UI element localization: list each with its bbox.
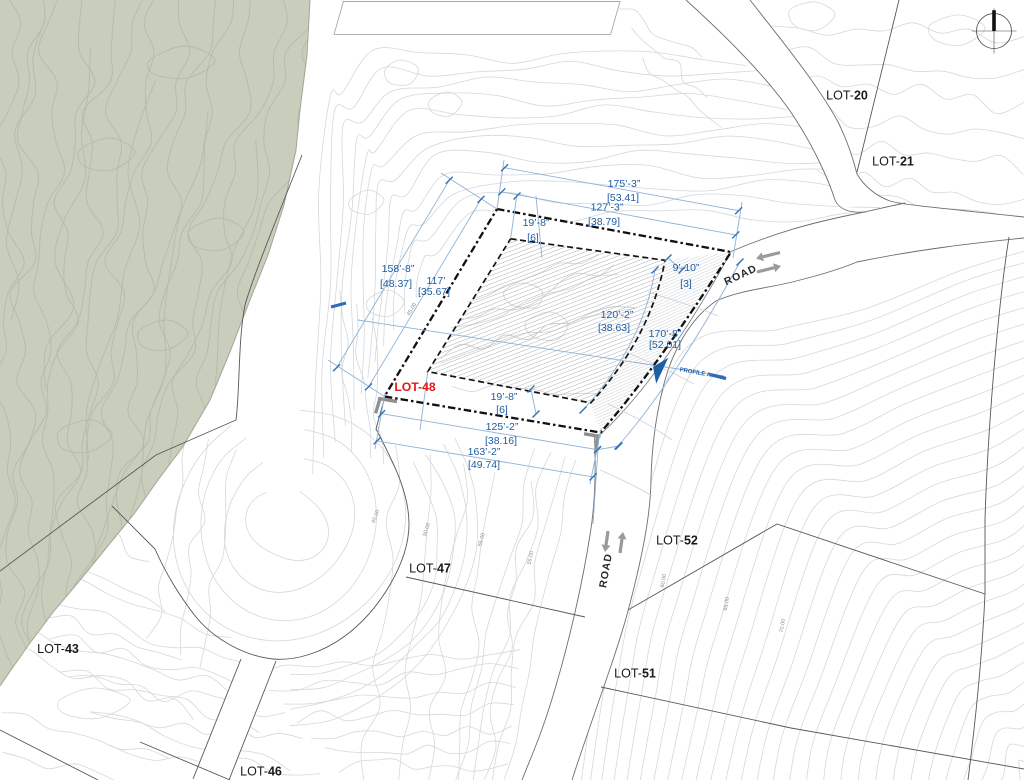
- svg-text:[38.79]: [38.79]: [588, 216, 620, 228]
- svg-text:125’-2”: 125’-2”: [486, 421, 519, 433]
- svg-text:[38.63]: [38.63]: [598, 322, 630, 334]
- svg-text:LOT-52: LOT-52: [656, 534, 698, 548]
- svg-text:9’-10”: 9’-10”: [673, 262, 700, 274]
- svg-text:LOT-20: LOT-20: [826, 89, 868, 103]
- svg-text:LOT-21: LOT-21: [872, 155, 914, 169]
- svg-text:[49.74]: [49.74]: [468, 459, 500, 471]
- svg-text:[6]: [6]: [496, 404, 508, 416]
- svg-text:127’-3”: 127’-3”: [591, 202, 624, 214]
- svg-text:[48.37]: [48.37]: [380, 278, 412, 290]
- svg-text:[6]: [6]: [527, 232, 539, 244]
- svg-text:19’-8”: 19’-8”: [523, 217, 550, 229]
- svg-text:[35.67]: [35.67]: [418, 286, 450, 298]
- svg-text:19’-8”: 19’-8”: [491, 391, 518, 403]
- svg-text:LOT-43: LOT-43: [37, 642, 79, 656]
- svg-text:LOT-47: LOT-47: [409, 562, 451, 576]
- svg-text:175’-3”: 175’-3”: [608, 178, 641, 190]
- svg-text:[52.01]: [52.01]: [649, 339, 681, 351]
- svg-text:120’-2”: 120’-2”: [601, 309, 634, 321]
- svg-text:[3]: [3]: [680, 278, 692, 290]
- svg-text:LOT-51: LOT-51: [614, 667, 656, 681]
- svg-text:LOT-48: LOT-48: [394, 380, 436, 394]
- svg-text:158’-8”: 158’-8”: [382, 263, 415, 275]
- svg-text:163’-2”: 163’-2”: [468, 446, 501, 458]
- svg-text:LOT-46: LOT-46: [240, 765, 282, 779]
